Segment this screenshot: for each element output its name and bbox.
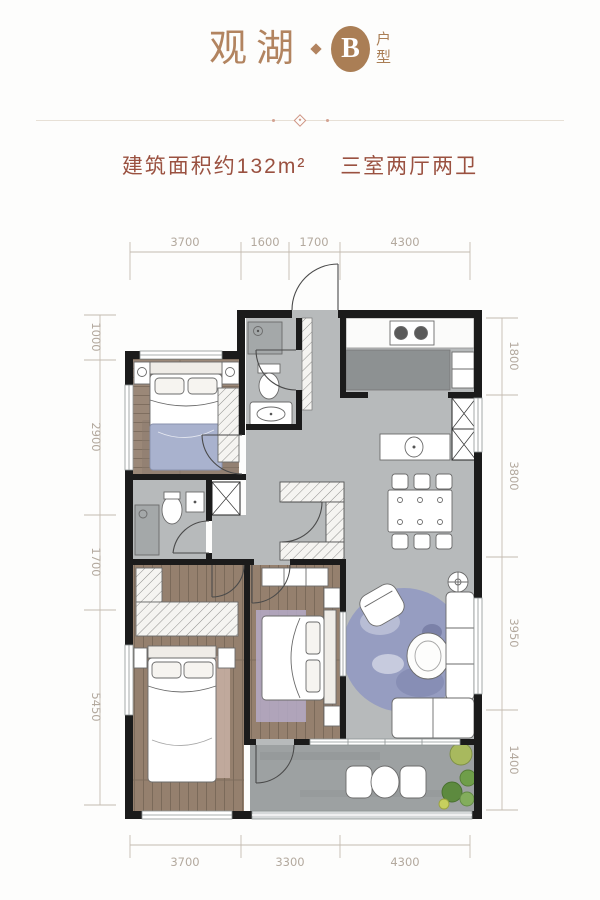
plant xyxy=(450,743,472,765)
wardrobe xyxy=(136,568,162,602)
dining-chair xyxy=(436,534,452,549)
sliding-door xyxy=(310,739,460,745)
dim-label-left-3: 5450 xyxy=(89,692,103,721)
bedroom1-furniture xyxy=(134,362,239,476)
pillow xyxy=(306,622,320,654)
dim-label-top-0: 3700 xyxy=(170,235,199,249)
bedroom1-wardrobe xyxy=(218,388,239,462)
pillow xyxy=(152,662,181,678)
toilet xyxy=(259,373,279,399)
pillow xyxy=(184,662,213,678)
window xyxy=(474,598,482,694)
dining-chair xyxy=(414,474,430,489)
nightstand xyxy=(218,648,235,668)
master-wardrobe xyxy=(136,602,238,636)
window xyxy=(125,385,133,470)
nightstand xyxy=(222,362,239,384)
dining-table xyxy=(388,490,452,532)
sofa-chaise xyxy=(446,592,474,700)
nightstand xyxy=(134,648,147,668)
dim-label-right-1: 3800 xyxy=(507,461,521,490)
fridge xyxy=(452,352,474,388)
kitchen-island-counter xyxy=(346,350,450,390)
dim-label-right-3: 1400 xyxy=(507,745,521,774)
pillow xyxy=(306,660,320,692)
dim-label-top-2: 1700 xyxy=(299,235,328,249)
window xyxy=(140,351,222,359)
dining-chair xyxy=(414,534,430,549)
pillow xyxy=(188,378,217,394)
dining-chair xyxy=(392,534,408,549)
window xyxy=(125,645,133,715)
plant xyxy=(460,792,474,806)
dim-label-left-2: 1700 xyxy=(89,547,103,576)
bed-headboard xyxy=(150,362,222,374)
bed-headboard xyxy=(148,646,216,658)
balcony-table xyxy=(371,766,399,798)
toilet-tank xyxy=(258,364,280,373)
toilet xyxy=(162,496,182,524)
pillow xyxy=(155,378,184,394)
nightstand xyxy=(324,588,340,608)
nightstand xyxy=(324,706,340,726)
dim-label-left-0: 1000 xyxy=(89,322,103,351)
dining-furniture xyxy=(388,474,452,549)
dim-label-top-3: 4300 xyxy=(390,235,419,249)
dim-label-left-1: 2900 xyxy=(89,422,103,451)
plant xyxy=(460,770,476,786)
balcony-chair xyxy=(346,766,372,798)
entry-door xyxy=(292,264,338,310)
window xyxy=(142,811,232,819)
dresser xyxy=(262,568,328,586)
pocket-door xyxy=(340,612,346,676)
shower xyxy=(248,322,282,354)
dining-chair xyxy=(436,474,452,489)
dining-chair xyxy=(392,474,408,489)
balcony-chair xyxy=(400,766,426,798)
plant xyxy=(439,799,449,809)
coffee-table xyxy=(407,633,449,679)
dim-label-bottom-1: 3300 xyxy=(275,855,304,869)
corridor-floor xyxy=(212,515,246,559)
bed-headboard xyxy=(324,610,336,704)
balcony-railing xyxy=(252,811,472,819)
dim-label-right-0: 1800 xyxy=(507,341,521,370)
floorplan-page: 观湖 B 户 型 建筑面积约132m² 三室两厅两卫 xyxy=(0,0,600,900)
dim-label-bottom-0: 3700 xyxy=(170,855,199,869)
toilet-tank xyxy=(164,492,180,499)
dim-label-right-2: 3950 xyxy=(507,618,521,647)
floor-plan: 3700 1600 1700 4300 3700 3300 4300 1000 … xyxy=(0,0,600,900)
dim-label-top-1: 1600 xyxy=(250,235,279,249)
window xyxy=(474,398,482,452)
dim-label-bottom-2: 4300 xyxy=(390,855,419,869)
nightstand xyxy=(134,362,150,384)
